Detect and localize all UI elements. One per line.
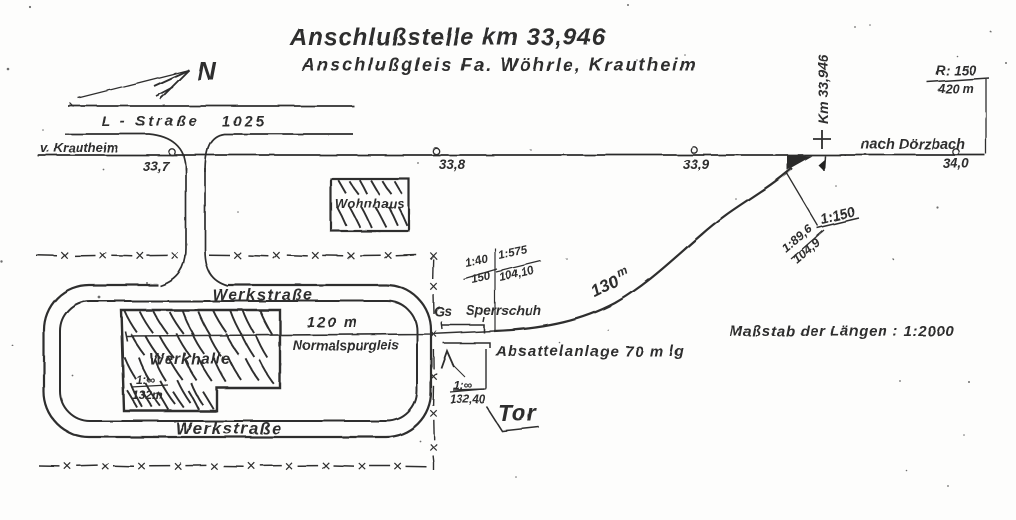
svg-text:33,9: 33,9	[683, 157, 710, 172]
svg-text:Normalspurgleis: Normalspurgleis	[293, 338, 400, 353]
svg-text:Tor: Tor	[498, 400, 537, 426]
svg-text:120 m: 120 m	[307, 314, 360, 331]
svg-text:Anschlußgleis Fa. Wöhrle, Krau: Anschlußgleis Fa. Wöhrle, Krautheim	[301, 55, 698, 75]
svg-text:Km 33,946: Km 33,946	[815, 55, 831, 124]
svg-text:33,8: 33,8	[439, 157, 466, 172]
svg-text:v. Krautheim: v. Krautheim	[40, 140, 118, 155]
svg-text:Sperrschuh: Sperrschuh	[466, 303, 541, 318]
svg-text:Gs: Gs	[434, 304, 453, 319]
svg-text:R: 150: R: 150	[936, 63, 977, 78]
svg-text:L - Straße 1025: L - Straße 1025	[101, 113, 267, 130]
svg-text:132m: 132m	[132, 388, 163, 402]
svg-text:Werkstraße: Werkstraße	[212, 287, 314, 304]
svg-text:Anschlußstelle km 33,946: Anschlußstelle km 33,946	[289, 24, 606, 51]
svg-text:N: N	[197, 56, 217, 86]
svg-text:420 m: 420 m	[937, 82, 973, 96]
svg-text:Maßstab der Längen : 1:2000: Maßstab der Längen : 1:2000	[730, 323, 955, 340]
svg-text:34,0: 34,0	[943, 156, 970, 171]
svg-text:Werkstraße: Werkstraße	[175, 419, 282, 438]
svg-text:nach Dörzbach: nach Dörzbach	[861, 137, 965, 153]
svg-text:1:∞: 1:∞	[136, 373, 156, 387]
svg-text:Absattelanlage 70 m lg: Absattelanlage 70 m lg	[495, 343, 685, 360]
svg-text:33,7: 33,7	[143, 159, 171, 174]
svg-text:Werkhalle: Werkhalle	[149, 351, 231, 368]
svg-text:132,40: 132,40	[450, 394, 486, 406]
svg-text:Wohnhaus: Wohnhaus	[335, 196, 405, 211]
